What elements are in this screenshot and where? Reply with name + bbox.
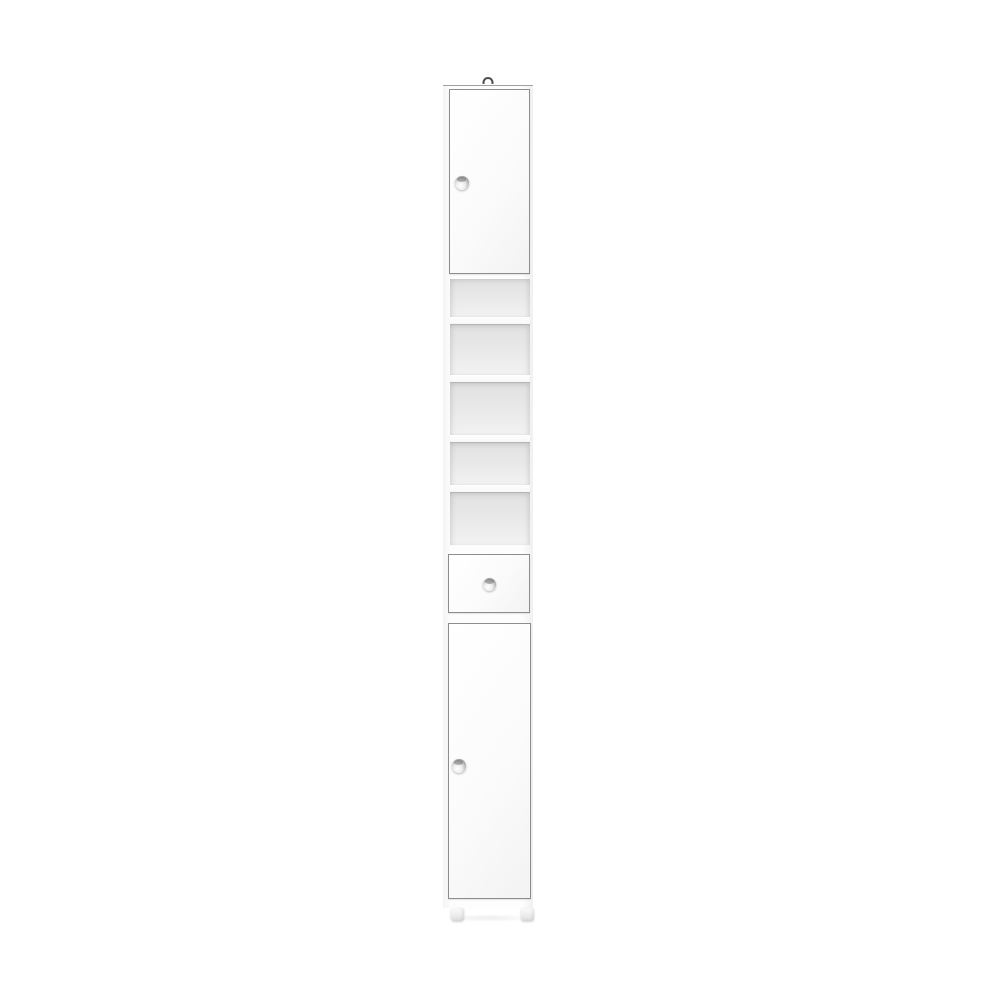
shelf-board	[450, 485, 530, 493]
shelf-compartment	[450, 383, 530, 435]
tall-cabinet	[443, 85, 533, 908]
lower-door-knob-icon	[452, 759, 466, 773]
shelf-compartment	[450, 279, 530, 317]
shelf-board	[450, 375, 530, 383]
shelf-board	[450, 435, 530, 443]
right-foot	[521, 908, 534, 921]
drawer-knob-icon	[483, 578, 496, 591]
shelf-board	[450, 317, 530, 325]
shelf-compartment	[450, 493, 530, 545]
upper-door	[449, 89, 530, 274]
left-foot	[451, 908, 464, 921]
upper-door-knob-icon	[455, 176, 469, 190]
lower-door	[448, 623, 531, 899]
open-shelf-section	[450, 279, 530, 545]
drawer	[448, 554, 530, 613]
product-photo-scene	[0, 0, 1000, 1000]
shelf-compartment	[450, 443, 530, 485]
shelf-compartment	[450, 325, 530, 375]
top-hook-icon	[483, 77, 494, 84]
